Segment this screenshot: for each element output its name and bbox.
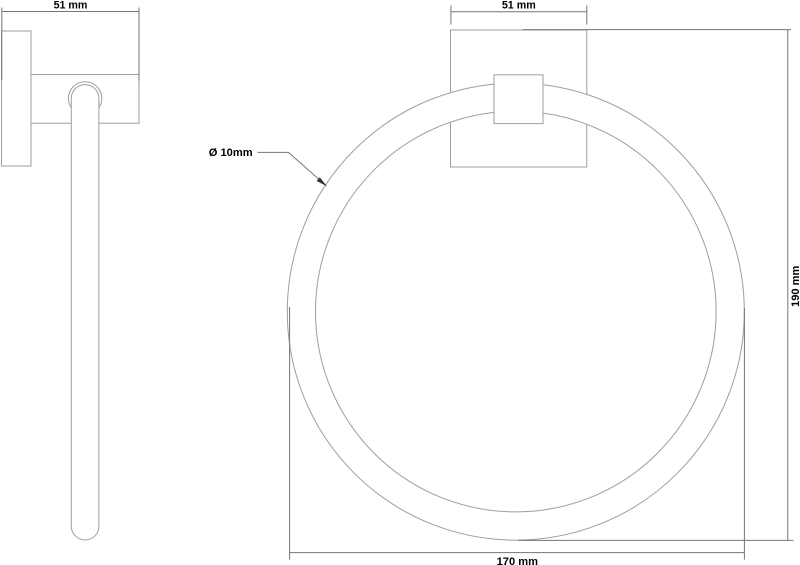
- svg-text:51 mm: 51 mm: [54, 0, 88, 12]
- svg-text:190 mm: 190 mm: [790, 266, 800, 307]
- svg-text:51 mm: 51 mm: [502, 0, 536, 11]
- svg-text:170 mm: 170 mm: [497, 556, 538, 565]
- svg-text:Ø 10mm: Ø 10mm: [209, 147, 253, 159]
